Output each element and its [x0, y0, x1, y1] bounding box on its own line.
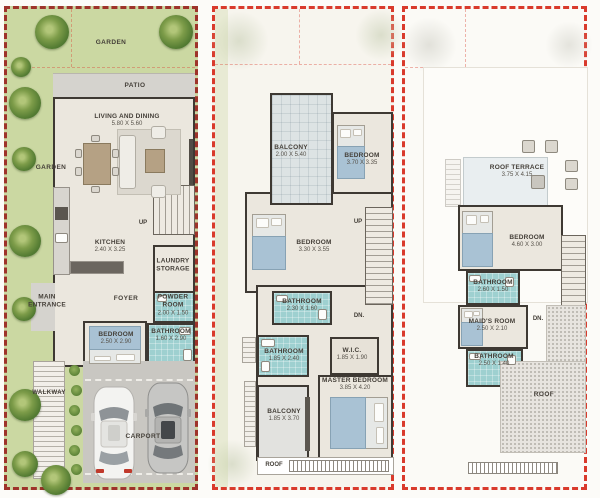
- bush: [69, 365, 80, 376]
- room-label-bathroom-master: BATHROOM 1.85 X 2.40: [264, 348, 303, 364]
- louvre-detail: [445, 159, 461, 207]
- tree: [159, 15, 193, 49]
- floorplan-sheet: { "colors": { "boundary_red": "#d93a2c",…: [0, 0, 600, 498]
- coffee-table: [145, 149, 165, 173]
- room-label-master-bedroom: MASTER BEDROOM 3.85 X 4.20: [322, 377, 388, 393]
- room-label-bathroom: BATHROOM 1.60 X 2.90: [151, 328, 190, 344]
- room-label-kitchen: KITCHEN 2.40 X 3.25: [95, 239, 126, 255]
- terrace-chair: [565, 178, 578, 190]
- room-label-bathroom-lower: BATHROOM 2.50 X 1.40: [474, 353, 513, 369]
- car-top-view-silver: [145, 381, 191, 475]
- bed: [330, 397, 388, 449]
- dining-chair: [75, 149, 82, 158]
- louvre-detail: [244, 381, 256, 447]
- room-label-bedroom-front: BEDROOM 3.70 X 3.35: [344, 152, 379, 168]
- sofa: [119, 135, 136, 189]
- label-up: UP: [139, 220, 147, 228]
- faded-tree: [355, 9, 407, 61]
- plot-divider-line: [71, 9, 72, 67]
- room-label-balcony-front: BALCONY 2.00 X 5.40: [274, 144, 308, 160]
- room-label-bedroom-mid: BEDROOM 3.30 X 3.55: [296, 239, 331, 255]
- kitchen-sink: [55, 233, 68, 243]
- kitchen-counter: [53, 187, 70, 275]
- bush: [69, 405, 80, 416]
- bush: [71, 425, 82, 436]
- room-label-garden-side: GARDEN: [36, 164, 67, 172]
- room-label-balcony-rear: BALCONY 1.85 X 3.70: [267, 408, 301, 424]
- room-label-carport: CARPORT: [126, 433, 161, 441]
- tree: [12, 451, 38, 477]
- label-roof: ROOF: [534, 391, 554, 399]
- dining-chair: [75, 167, 82, 176]
- roof-area: [546, 305, 586, 363]
- bush: [71, 464, 82, 475]
- terrace-chair: [522, 140, 535, 153]
- armchair: [151, 185, 166, 198]
- plot-divider-line: [465, 9, 466, 67]
- room-label-bedroom: BEDROOM 4.60 X 3.00: [509, 234, 544, 250]
- room-label-walkway: WALKWAY: [32, 390, 66, 398]
- tree: [12, 147, 36, 171]
- faded-garden-strip: [215, 9, 228, 487]
- dining-chair: [112, 167, 119, 176]
- bush: [69, 445, 80, 456]
- kitchen-island-counter: [70, 261, 124, 274]
- tree: [35, 15, 69, 49]
- room-label-foyer: FOYER: [114, 295, 138, 303]
- room-label-living-dining: LIVING AND DINING 5.80 X 5.60: [94, 113, 159, 129]
- plot-divider-line: [299, 9, 300, 64]
- bush: [71, 385, 82, 396]
- staircase: [365, 207, 393, 305]
- roof-plan: ROOF TERRACE 3.75 X 4.15 BEDROOM 4.60 X …: [402, 6, 587, 490]
- staircase-down: [561, 235, 586, 307]
- planter: [305, 397, 310, 451]
- roof-hatch: [468, 462, 558, 474]
- label-dn: DN.: [533, 316, 543, 324]
- roof-area: [500, 361, 586, 453]
- sink: [261, 339, 275, 347]
- dining-chair: [112, 149, 119, 158]
- plot-divider-line: [7, 67, 195, 68]
- louvre-detail: [242, 337, 256, 363]
- room-label-roof-terrace: ROOF TERRACE 3.75 X 4.15: [490, 164, 544, 180]
- room-label-powder-room: POWDER ROOM 2.00 X 1.50: [154, 294, 192, 319]
- roof-hatch: [289, 460, 389, 472]
- label-up: UP: [354, 219, 362, 227]
- dining-chair: [91, 186, 100, 193]
- room-label-bedroom: BEDROOM 2.50 X 2.90: [98, 331, 133, 347]
- room-label-laundry-storage: LAUNDRY STORAGE: [156, 258, 189, 275]
- ground-floor-plan: GARDEN PATIO LIVING AND DINING 5.80 X 5.…: [4, 6, 198, 490]
- first-floor-plan: BALCONY 2.00 X 5.40 BEDROOM 3.70 X 3.35 …: [212, 6, 394, 490]
- tree: [41, 465, 71, 495]
- stove: [55, 207, 68, 220]
- room-label-main-entrance: MAIN ENTRANCE: [28, 294, 66, 311]
- toilet: [183, 349, 192, 361]
- plot-divider-line: [215, 64, 391, 65]
- tv-console: [189, 139, 193, 185]
- bed: [252, 214, 286, 270]
- room-label-bathroom-upper: BATHROOM 2.60 X 1.50: [473, 279, 512, 295]
- room-label-patio: PATIO: [125, 82, 146, 90]
- label-roof: ROOF: [265, 462, 282, 470]
- dining-table: [83, 143, 111, 185]
- terrace-chair: [545, 140, 558, 153]
- room-label-wic: W.I.C. 1.85 X 1.90: [337, 347, 368, 363]
- faded-tree: [401, 17, 457, 73]
- label-dn: DN.: [354, 313, 364, 321]
- terrace-chair: [565, 160, 578, 172]
- tree: [9, 225, 41, 257]
- tree: [9, 87, 41, 119]
- room-label-maids-room: MAID'S ROOM 2.50 X 2.10: [469, 318, 516, 334]
- dining-chair: [91, 135, 100, 142]
- tree: [11, 57, 31, 77]
- faded-tree: [545, 21, 593, 69]
- bed: [462, 211, 493, 267]
- room-label-bathroom-hall: BATHROOM 2.30 X 1.60: [282, 298, 321, 314]
- room-label-garden-top: GARDEN: [96, 39, 127, 47]
